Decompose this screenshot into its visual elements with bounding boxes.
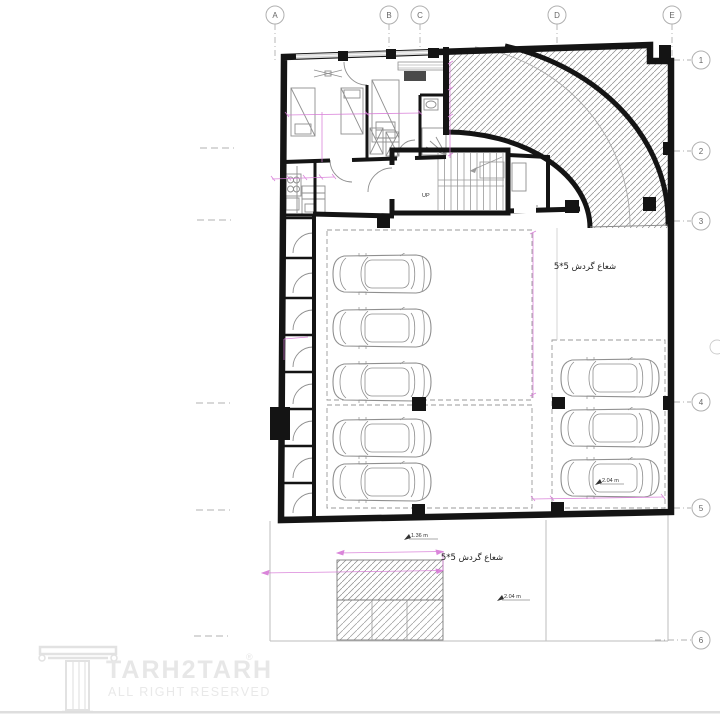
yard-boundary [270,514,668,641]
grid-row-dashes-left [194,148,234,636]
storage-door-arc [293,493,313,513]
parking-clearance-label: 2.04 m [602,478,619,484]
storage-door-arc [293,384,313,404]
curved-ramp [446,45,671,228]
floor-plan-drawing: ABCDE 123456 [0,0,720,720]
grid-bubble-label-4: 4 [699,398,704,407]
car [333,460,431,504]
watermark-tagline: ALL RIGHT RESERVED [108,685,271,699]
floor-plan-page: ABCDE 123456 [0,0,720,720]
car [333,416,431,460]
grid-bubble-label-A: A [272,11,278,20]
car [561,406,659,450]
car [333,360,431,404]
kitchen-fixtures [285,166,325,214]
partial-callout-bubble [710,340,720,354]
vent-unit [398,62,444,81]
bedroom-furniture [291,62,415,182]
storage-door-arc [293,233,313,253]
car [561,356,659,400]
grid-bubble-label-5: 5 [699,504,704,513]
storage-door-arc [293,273,313,293]
storage-door-arc [293,310,313,330]
grid-bubble-label-2: 2 [699,147,704,156]
grid-bubble-label-E: E [669,11,674,20]
leader-label-yard-dim: 1.36 m [404,533,438,540]
turning-radius-label-parking: شعاع گردش 5*5 [554,261,616,272]
turning-radius-label-yard: شعاع گردش 5*5 [441,552,503,563]
grid-bubble-label-3: 3 [699,217,704,226]
bottom-border-line [0,711,720,714]
leader-label-yard-clearance: 2.04 m [497,594,530,601]
storage-door-arc [293,347,313,367]
car [333,252,431,296]
watermark: TARH2TARH ® ALL RIGHT RESERVED [39,647,273,712]
registered-icon: ® [246,652,253,662]
grid-bubble-label-C: C [417,11,423,20]
grid-bubble-label-B: B [386,11,391,20]
bathroom-fixtures [422,99,446,155]
parked-cars [333,252,659,504]
storage-door-arc [293,458,313,478]
car [333,306,431,350]
grid-bubble-label-6: 6 [699,636,704,645]
storage-door-arc [293,421,313,441]
up-label: UP [422,193,430,199]
yard-clearance-label: 2.04 m [504,594,521,600]
grid-bubble-label-1: 1 [699,56,704,65]
yard-dim-label: 1.36 m [411,533,428,539]
grid-bubble-label-D: D [554,11,560,20]
